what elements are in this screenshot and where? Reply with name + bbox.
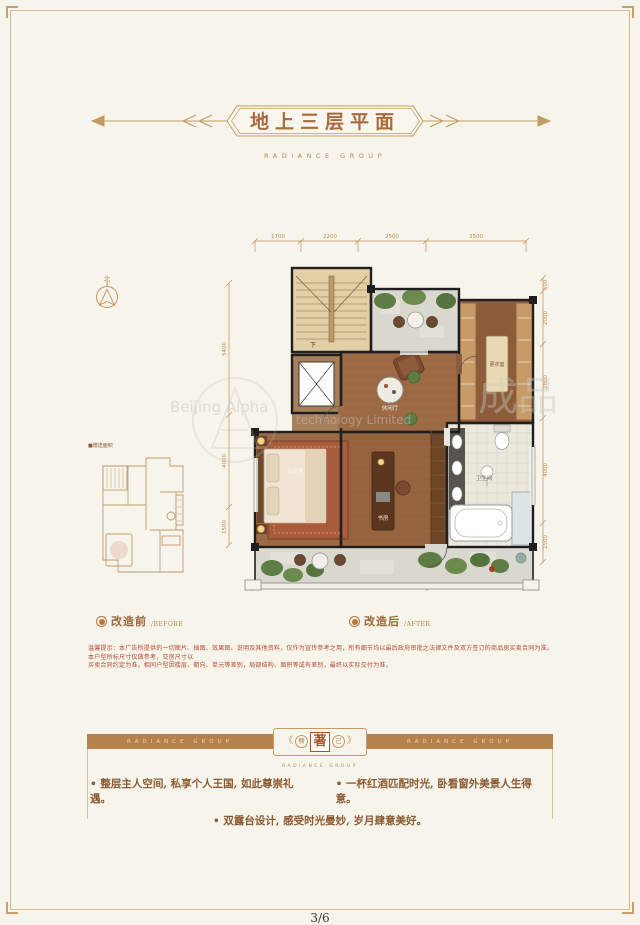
brand-seal: 《 畅 著 己 》: [273, 728, 367, 756]
seal-center-char: 著: [310, 732, 330, 752]
compass-north-label: 北: [104, 275, 111, 283]
seal-left-char: 畅: [295, 735, 308, 748]
watermark-text-cn: 成品: [478, 374, 558, 420]
selling-point-1: • 整层主人空间, 私享个人王国, 如此尊崇礼遇。: [90, 776, 312, 806]
svg-text:1500: 1500: [222, 520, 228, 534]
watermark-text-left: Beijing Alpha: [170, 398, 268, 416]
label-master-bedroom: 主卧室: [287, 467, 304, 475]
label-dressing-room: 更衣室: [489, 361, 504, 368]
banner-caption: RADIANCE GROUP: [87, 764, 553, 769]
watermark-logo: [212, 388, 258, 448]
svg-text:2000: 2000: [543, 311, 549, 325]
marker-after-label: 改造后: [364, 613, 400, 629]
bedroom-furniture: [255, 436, 348, 539]
label-study: 书房: [377, 514, 389, 522]
label-lounge: 休闲厅: [382, 404, 399, 412]
marker-before: 改造前 /BEFORE: [96, 613, 183, 629]
svg-text:500: 500: [543, 279, 549, 290]
page-title: 地上三层平面: [250, 110, 400, 133]
frame-corner-topright: [622, 6, 634, 18]
label-stairs-down: 下: [310, 342, 316, 349]
marker-before-label-en: /BEFORE: [151, 621, 183, 628]
svg-text:1700: 1700: [271, 234, 285, 240]
seal-bracket-left: 《: [284, 737, 293, 746]
selling-point-3: • 双露台设计, 感受时光曼妙, 岁月肆意美好。: [213, 815, 427, 827]
marker-before-icon: [96, 616, 107, 627]
selling-points-row1: • 整层主人空间, 私享个人王国, 如此尊崇礼遇。 • 一杯红酒匹配时光, 卧看…: [90, 776, 550, 806]
thumbnail-plan: ■赠送面积: [88, 442, 183, 572]
banner-right-text: RADIANCE GROUP: [367, 739, 553, 745]
svg-text:1500: 1500: [543, 535, 549, 549]
page-number: 3/6: [0, 911, 640, 925]
floor-plan: 1700 2200 2500 3500 6400 3500 5400 4000 …: [40, 225, 580, 603]
page-subtitle: RADIANCE GROUP: [264, 152, 386, 160]
floorplan-poster-page: { "page": { "background": "#f6f4eb", "ac…: [0, 0, 640, 920]
elevator: [299, 362, 334, 406]
marker-after-label-en: /AFTER: [404, 621, 430, 628]
svg-text:2500: 2500: [385, 234, 399, 240]
svg-text:5400: 5400: [222, 342, 228, 356]
svg-text:3500: 3500: [469, 234, 483, 240]
marker-after: 改造后 /AFTER: [349, 613, 430, 629]
thumbnail-caption: ■赠送面积: [88, 442, 113, 449]
banner-left-text: RADIANCE GROUP: [87, 739, 273, 745]
disclaimer: 温馨提示：本广告所提供的一切图片、插图、效果图、说明及其他资料，仅作为宣传参考之…: [88, 645, 554, 671]
selling-points-row2: • 双露台设计, 感受时光曼妙, 岁月肆意美好。: [90, 813, 550, 828]
frame-corner-topleft: [6, 6, 18, 18]
svg-text:2200: 2200: [323, 234, 337, 240]
disclaimer-line1: 温馨提示：本广告所提供的一切图片、插图、效果图、说明及其他资料，仅作为宣传参考之…: [88, 645, 554, 662]
header-ornament: 地上三层平面 RADIANCE GROUP: [0, 95, 640, 170]
brand-banner: RADIANCE GROUP 《 畅 著 己 》 RADIANCE GROUP: [87, 734, 553, 749]
label-bathroom: 卫生间: [476, 474, 493, 482]
disclaimer-line2: 买卖合同约定为准。相同户型因楼层、朝向、单元等差别，局部结构、面积等或有差别，最…: [88, 662, 554, 671]
seal-right-char: 己: [332, 735, 345, 748]
selling-point-2: • 一杯红酒匹配时光, 卧看窗外美景人生得意。: [336, 776, 550, 806]
selling-points: • 整层主人空间, 私享个人王国, 如此尊崇礼遇。 • 一杯红酒匹配时光, 卧看…: [90, 776, 550, 828]
marker-before-label: 改造前: [111, 613, 147, 629]
watermark-text-right: technology Limited: [296, 413, 411, 427]
compass-north-icon: 北: [97, 275, 118, 308]
marker-after-icon: [349, 616, 360, 627]
seal-bracket-right: 》: [347, 737, 356, 746]
svg-text:4000: 4000: [543, 463, 549, 477]
